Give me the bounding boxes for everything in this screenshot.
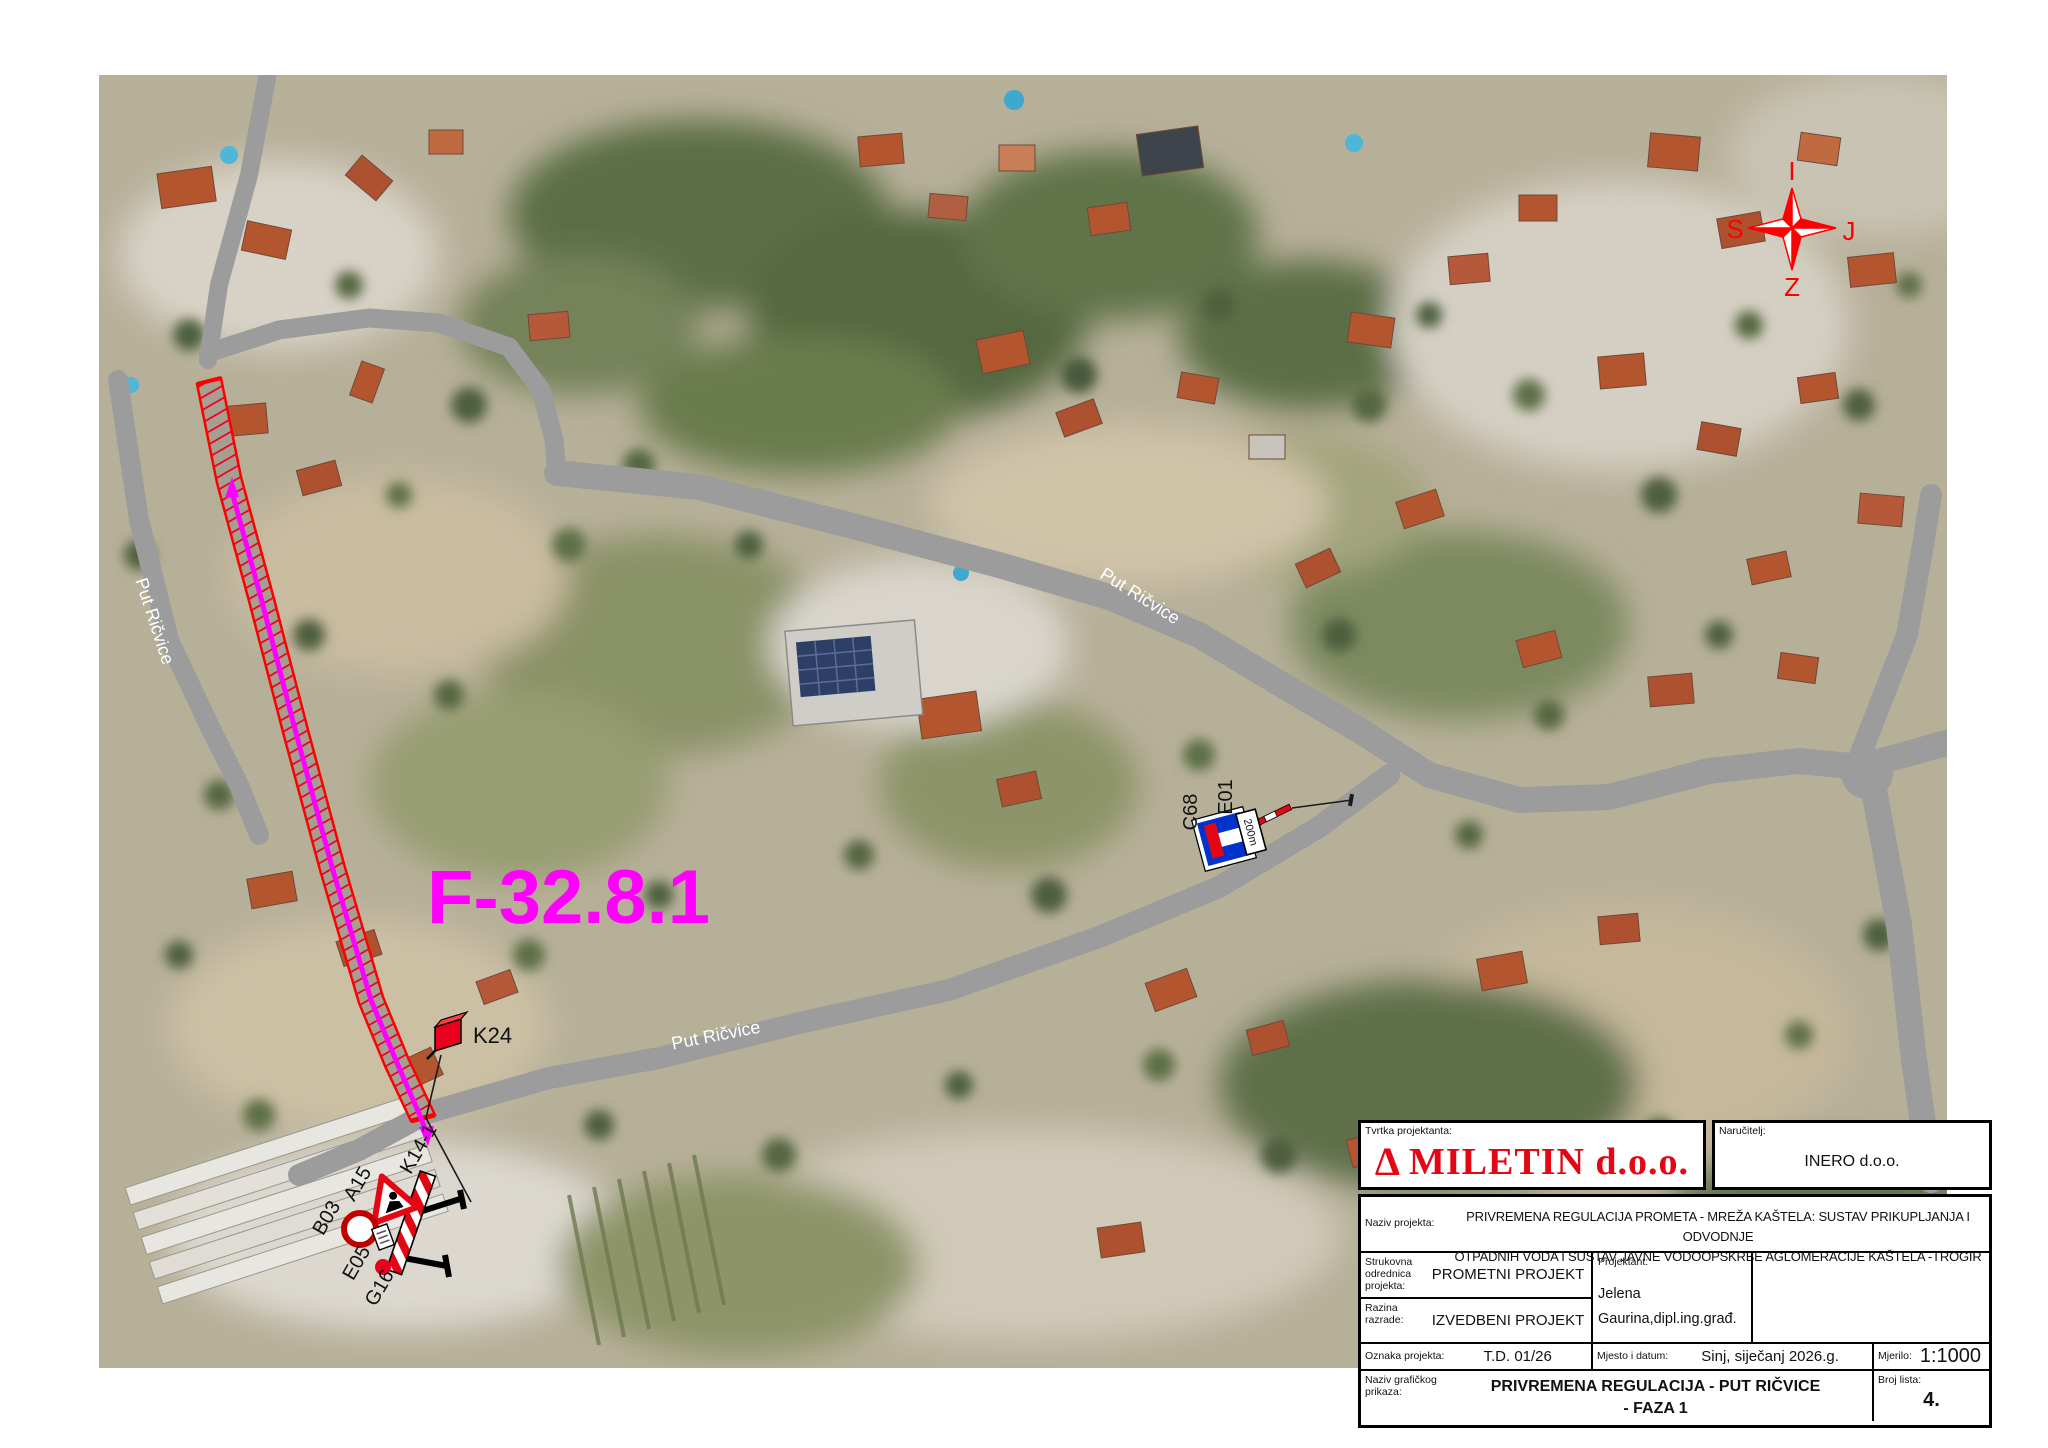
designer-label: Tvrtka projektanta:: [1365, 1125, 1699, 1137]
discipline-cell: Strukovna odrednica projekta: PROMETNI P…: [1361, 1253, 1591, 1299]
scale-value: 1:1000: [1912, 1345, 1989, 1368]
zone-label: F-32.8.1: [427, 855, 710, 940]
meta-row: Oznaka projekta: T.D. 01/26 Mjesto i dat…: [1361, 1344, 1989, 1371]
signature-cell: [1753, 1253, 1989, 1342]
engineer-name-line1: Jelena: [1598, 1282, 1751, 1307]
compass-letter-bottom: Z: [1784, 272, 1800, 302]
design-level-label: Razina razrade:: [1361, 1299, 1425, 1343]
place-date-value: Sinj, siječanj 2026.g.: [1668, 1348, 1872, 1365]
design-level-cell: Razina razrade: IZVEDBENI PROJEKT: [1361, 1299, 1591, 1343]
discipline-label: Strukovna odrednica projekta:: [1361, 1253, 1425, 1297]
project-code-cell: Oznaka projekta: T.D. 01/26: [1361, 1344, 1593, 1369]
design-level-value: IZVEDBENI PROJEKT: [1425, 1312, 1591, 1329]
company-logo: Δ MILETIN d.o.o.: [1365, 1138, 1699, 1185]
client-box: Naručitelj: INERO d.o.o.: [1712, 1120, 1992, 1190]
client-name: INERO d.o.o.: [1719, 1153, 1985, 1171]
project-name-line1: PRIVREMENA REGULACIJA PROMETA - MREŽA KA…: [1447, 1207, 1989, 1247]
project-name-value: PRIVREMENA REGULACIJA PROMETA - MREŽA KA…: [1447, 1197, 1989, 1251]
project-name-row: Naziv projekta: PRIVREMENA REGULACIJA PR…: [1361, 1197, 1989, 1253]
scale-label: Mjerilo:: [1874, 1350, 1912, 1362]
sheet-number-label: Broj lista:: [1878, 1374, 1921, 1386]
sheet-title-label: Naziv grafičkog prikaza:: [1361, 1371, 1439, 1421]
k24-label: K24: [473, 1023, 512, 1048]
compass-letter-left: S: [1726, 214, 1743, 244]
warehouse: [785, 620, 923, 726]
logo-triangle-icon: Δ: [1375, 1138, 1401, 1185]
title-block-main: Naziv projekta: PRIVREMENA REGULACIJA PR…: [1358, 1194, 1992, 1428]
sheet-title-row: Naziv grafičkog prikaza: PRIVREMENA REGU…: [1361, 1371, 1989, 1421]
discipline-row: Strukovna odrednica projekta: PROMETNI P…: [1361, 1253, 1989, 1344]
discipline-value: PROMETNI PROJEKT: [1425, 1266, 1591, 1283]
c68-label: C68: [1180, 794, 1202, 831]
sheet-title-value: PRIVREMENA REGULACIJA - PUT RIČVICE - FA…: [1439, 1371, 1872, 1421]
scale-cell: Mjerilo: 1:1000: [1874, 1344, 1989, 1369]
designer-box: Tvrtka projektanta: Δ MILETIN d.o.o.: [1358, 1120, 1706, 1190]
discipline-cells: Strukovna odrednica projekta: PROMETNI P…: [1361, 1253, 1593, 1342]
compass-letter-top: I: [1788, 156, 1795, 186]
project-name-label: Naziv projekta:: [1361, 1197, 1447, 1251]
sheet-number-value: 4.: [1874, 1389, 1989, 1412]
sheet-number-cell: Broj lista: 4.: [1874, 1371, 1989, 1421]
sheet-title-line2: - FAZA 1: [1439, 1398, 1872, 1420]
sheet-title-cell: Naziv grafičkog prikaza: PRIVREMENA REGU…: [1361, 1371, 1874, 1421]
company-name: MILETIN d.o.o.: [1409, 1140, 1689, 1184]
compass-letter-right: J: [1843, 216, 1856, 246]
sheet-title-line1: PRIVREMENA REGULACIJA - PUT RIČVICE: [1439, 1376, 1872, 1398]
project-code-label: Oznaka projekta:: [1361, 1350, 1444, 1362]
drawing-sheet: K24: [0, 0, 2048, 1448]
engineer-name-line2: Gaurina,dipl.ing.građ.: [1598, 1307, 1751, 1332]
place-date-label: Mjesto i datum:: [1593, 1350, 1668, 1362]
engineer-label: Projektant:: [1598, 1256, 1751, 1268]
project-code-value: T.D. 01/26: [1444, 1348, 1591, 1365]
e01-label: E01: [1215, 779, 1237, 815]
client-label: Naručitelj:: [1719, 1125, 1985, 1137]
title-block: Tvrtka projektanta: Δ MILETIN d.o.o. Nar…: [1358, 1120, 1992, 1428]
place-date-cell: Mjesto i datum: Sinj, siječanj 2026.g.: [1593, 1344, 1874, 1369]
engineer-cell: Projektant: Jelena Gaurina,dipl.ing.građ…: [1593, 1253, 1753, 1342]
engineer-name: Jelena Gaurina,dipl.ing.građ.: [1598, 1282, 1751, 1331]
